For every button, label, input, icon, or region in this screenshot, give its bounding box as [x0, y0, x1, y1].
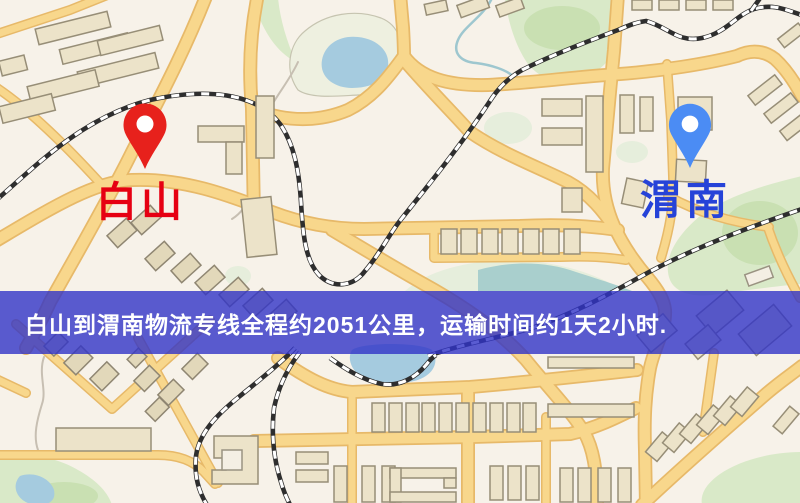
destination-city-label: 渭南	[640, 180, 732, 221]
route-info-text: 白山到渭南物流专线全程约2051公里，运输时间约1天2小时.	[0, 306, 667, 340]
route-info-banner: 白山到渭南物流专线全程约2051公里，运输时间约1天2小时.	[0, 291, 800, 354]
map-canvas	[0, 0, 800, 503]
origin-city-label: 白山	[96, 182, 186, 223]
logistics-route-map: 白山 渭南 白山到渭南物流专线全程约2051公里，运输时间约1天2小时.	[0, 0, 800, 503]
